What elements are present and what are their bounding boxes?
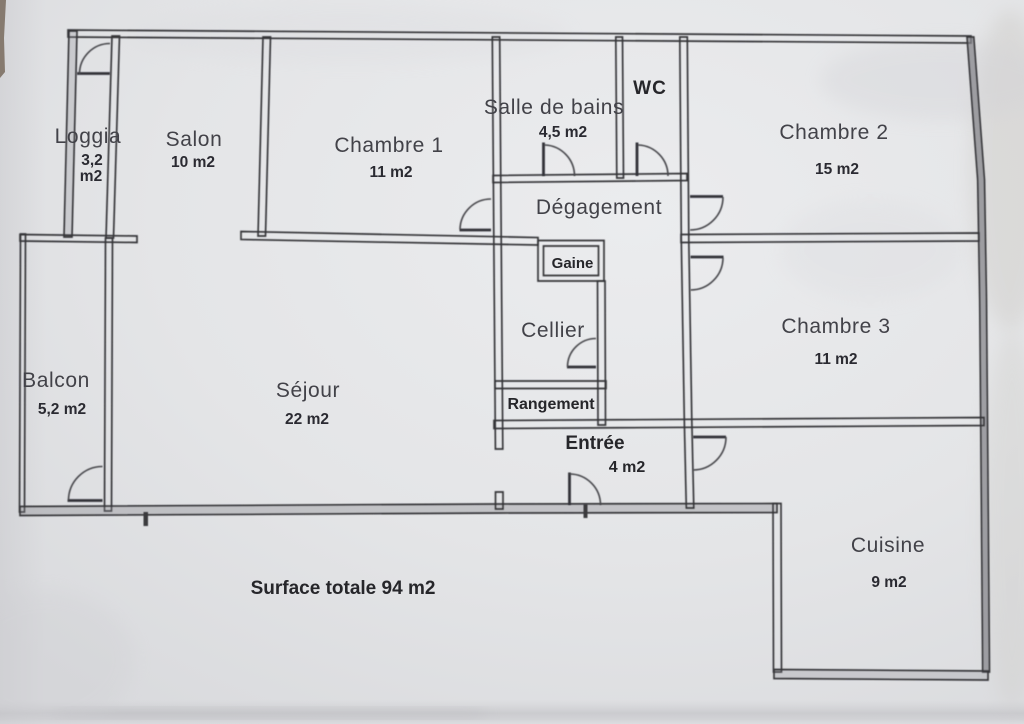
svg-text:22 m2: 22 m2 [285,411,329,428]
svg-text:5,2 m2: 5,2 m2 [38,401,86,418]
svg-text:Séjour: Séjour [276,379,340,402]
svg-text:Chambre 1: Chambre 1 [334,134,443,157]
svg-text:Dégagement: Dégagement [536,196,662,219]
svg-text:Loggia: Loggia [55,125,122,148]
svg-text:Salle de bains: Salle de bains [484,96,624,119]
svg-text:10 m2: 10 m2 [171,154,215,171]
svg-text:4 m2: 4 m2 [609,459,646,476]
svg-text:m2: m2 [80,168,102,185]
svg-text:Salon: Salon [166,128,223,151]
svg-text:Gaine: Gaine [552,255,594,272]
svg-text:Surface totale 94 m2: Surface totale 94 m2 [251,578,436,599]
svg-text:9 m2: 9 m2 [871,574,906,591]
svg-text:4,5 m2: 4,5 m2 [539,124,587,141]
svg-text:11 m2: 11 m2 [369,164,412,181]
svg-text:3,2: 3,2 [81,152,103,169]
svg-text:11 m2: 11 m2 [814,351,857,368]
svg-text:Entrée: Entrée [565,433,624,454]
svg-text:Cellier: Cellier [521,319,585,342]
svg-text:Balcon: Balcon [22,369,90,392]
svg-text:Chambre 2: Chambre 2 [779,121,888,144]
svg-text:Cuisine: Cuisine [851,534,925,557]
svg-text:WC: WC [633,78,667,99]
svg-text:Chambre 3: Chambre 3 [781,315,890,338]
svg-text:Rangement: Rangement [507,396,595,413]
svg-text:15 m2: 15 m2 [815,161,859,178]
